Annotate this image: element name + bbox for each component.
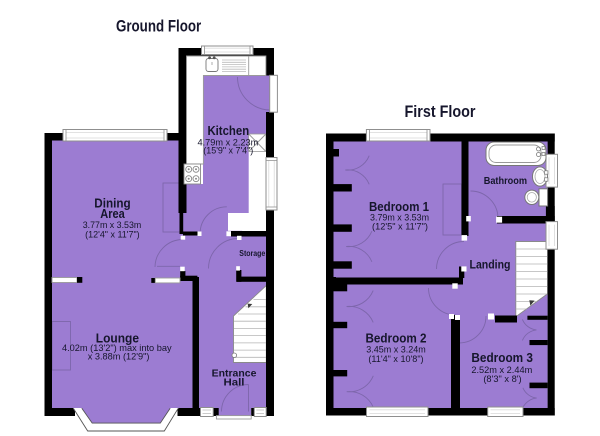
svg-text:Ground Floor: Ground Floor <box>116 17 202 36</box>
svg-text:Kitchen: Kitchen <box>207 124 249 138</box>
svg-text:First Floor: First Floor <box>405 102 476 121</box>
svg-text:Hall: Hall <box>224 377 245 389</box>
svg-text:Bedroom 2: Bedroom 2 <box>366 332 427 346</box>
svg-text:Landing: Landing <box>470 259 511 271</box>
svg-text:Storage: Storage <box>239 249 265 258</box>
svg-text:Area: Area <box>100 207 125 221</box>
svg-text:Bedroom 3: Bedroom 3 <box>471 351 533 365</box>
svg-text:Bathroom: Bathroom <box>484 175 527 187</box>
svg-text:(12'4" x 11'7"): (12'4" x 11'7") <box>85 229 140 240</box>
svg-text:(12'5" x 11'7"): (12'5" x 11'7") <box>372 222 428 233</box>
svg-text:(8'3" x 8'): (8'3" x 8') <box>483 374 521 385</box>
svg-text:(11'4" x 10'8"): (11'4" x 10'8") <box>368 354 423 365</box>
svg-text:(15'9" x 7'4"): (15'9" x 7'4") <box>203 145 253 156</box>
svg-text:x 3.88m (12'9"): x 3.88m (12'9") <box>88 351 150 362</box>
